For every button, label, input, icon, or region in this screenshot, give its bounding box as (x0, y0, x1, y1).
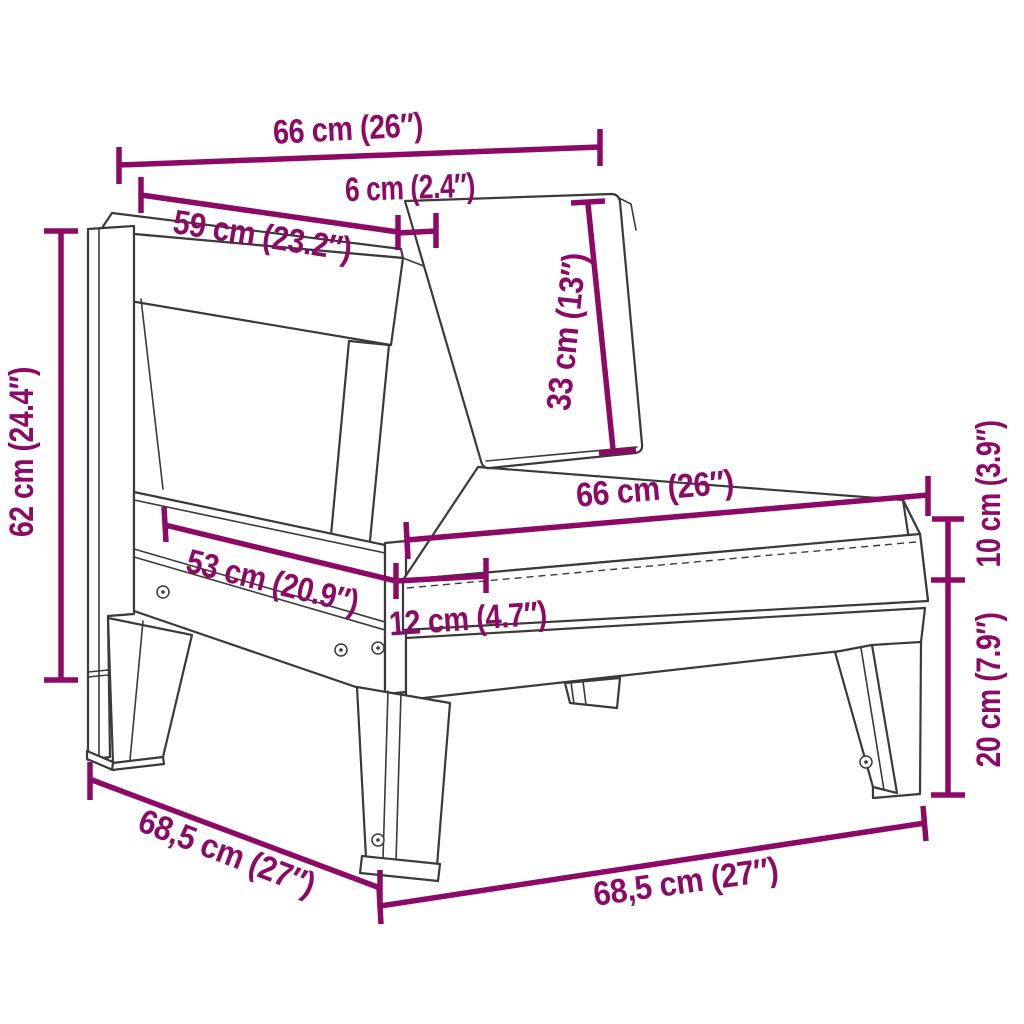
dimension-depth: 68,5 cm (27″) (90, 762, 380, 907)
dimension-cushion-thickness: 10 cm (3.9″) (931, 421, 1008, 581)
back-cushion (405, 194, 642, 468)
back-panel-edge (141, 299, 163, 489)
dimension-label-cushion-thickness: 10 cm (3.9″) (970, 421, 1008, 568)
dimension-line (44, 231, 78, 680)
dimension-frame-height: 62 cm (24.4″) (3, 231, 78, 680)
front-middle-leg (357, 687, 450, 866)
dimension-bottom-width: 68,5 cm (27″) (379, 806, 926, 924)
screw-dot-icon (864, 760, 868, 764)
dimension-line (931, 580, 965, 795)
dimension-leg-height: 20 cm (7.9″) (931, 580, 1008, 795)
back-frame-right-post (330, 341, 389, 551)
screw-dot-icon (161, 590, 165, 594)
dimension-line (379, 806, 926, 924)
screw-dot-icon (376, 646, 380, 650)
dimension-label-top-width: 66 cm (26″) (272, 106, 424, 152)
dimension-label-back-rail-thickness: 6 cm (2.4″) (344, 167, 475, 210)
dimension-label-frame-height: 62 cm (24.4″) (3, 367, 41, 537)
chair-dimension-diagram: 66 cm (26″) 59 cm (23.2″) 6 cm (2.4″) 33… (0, 0, 1024, 1024)
screw-dot-icon (376, 838, 380, 842)
diagram-page: 66 cm (26″) 59 cm (23.2″) 6 cm (2.4″) 33… (0, 0, 1024, 1024)
screw-dot-icon (339, 648, 343, 652)
dimension-line (931, 519, 965, 580)
front-left-leg (108, 618, 192, 763)
dimension-label-leg-height: 20 cm (7.9″) (970, 613, 1008, 768)
